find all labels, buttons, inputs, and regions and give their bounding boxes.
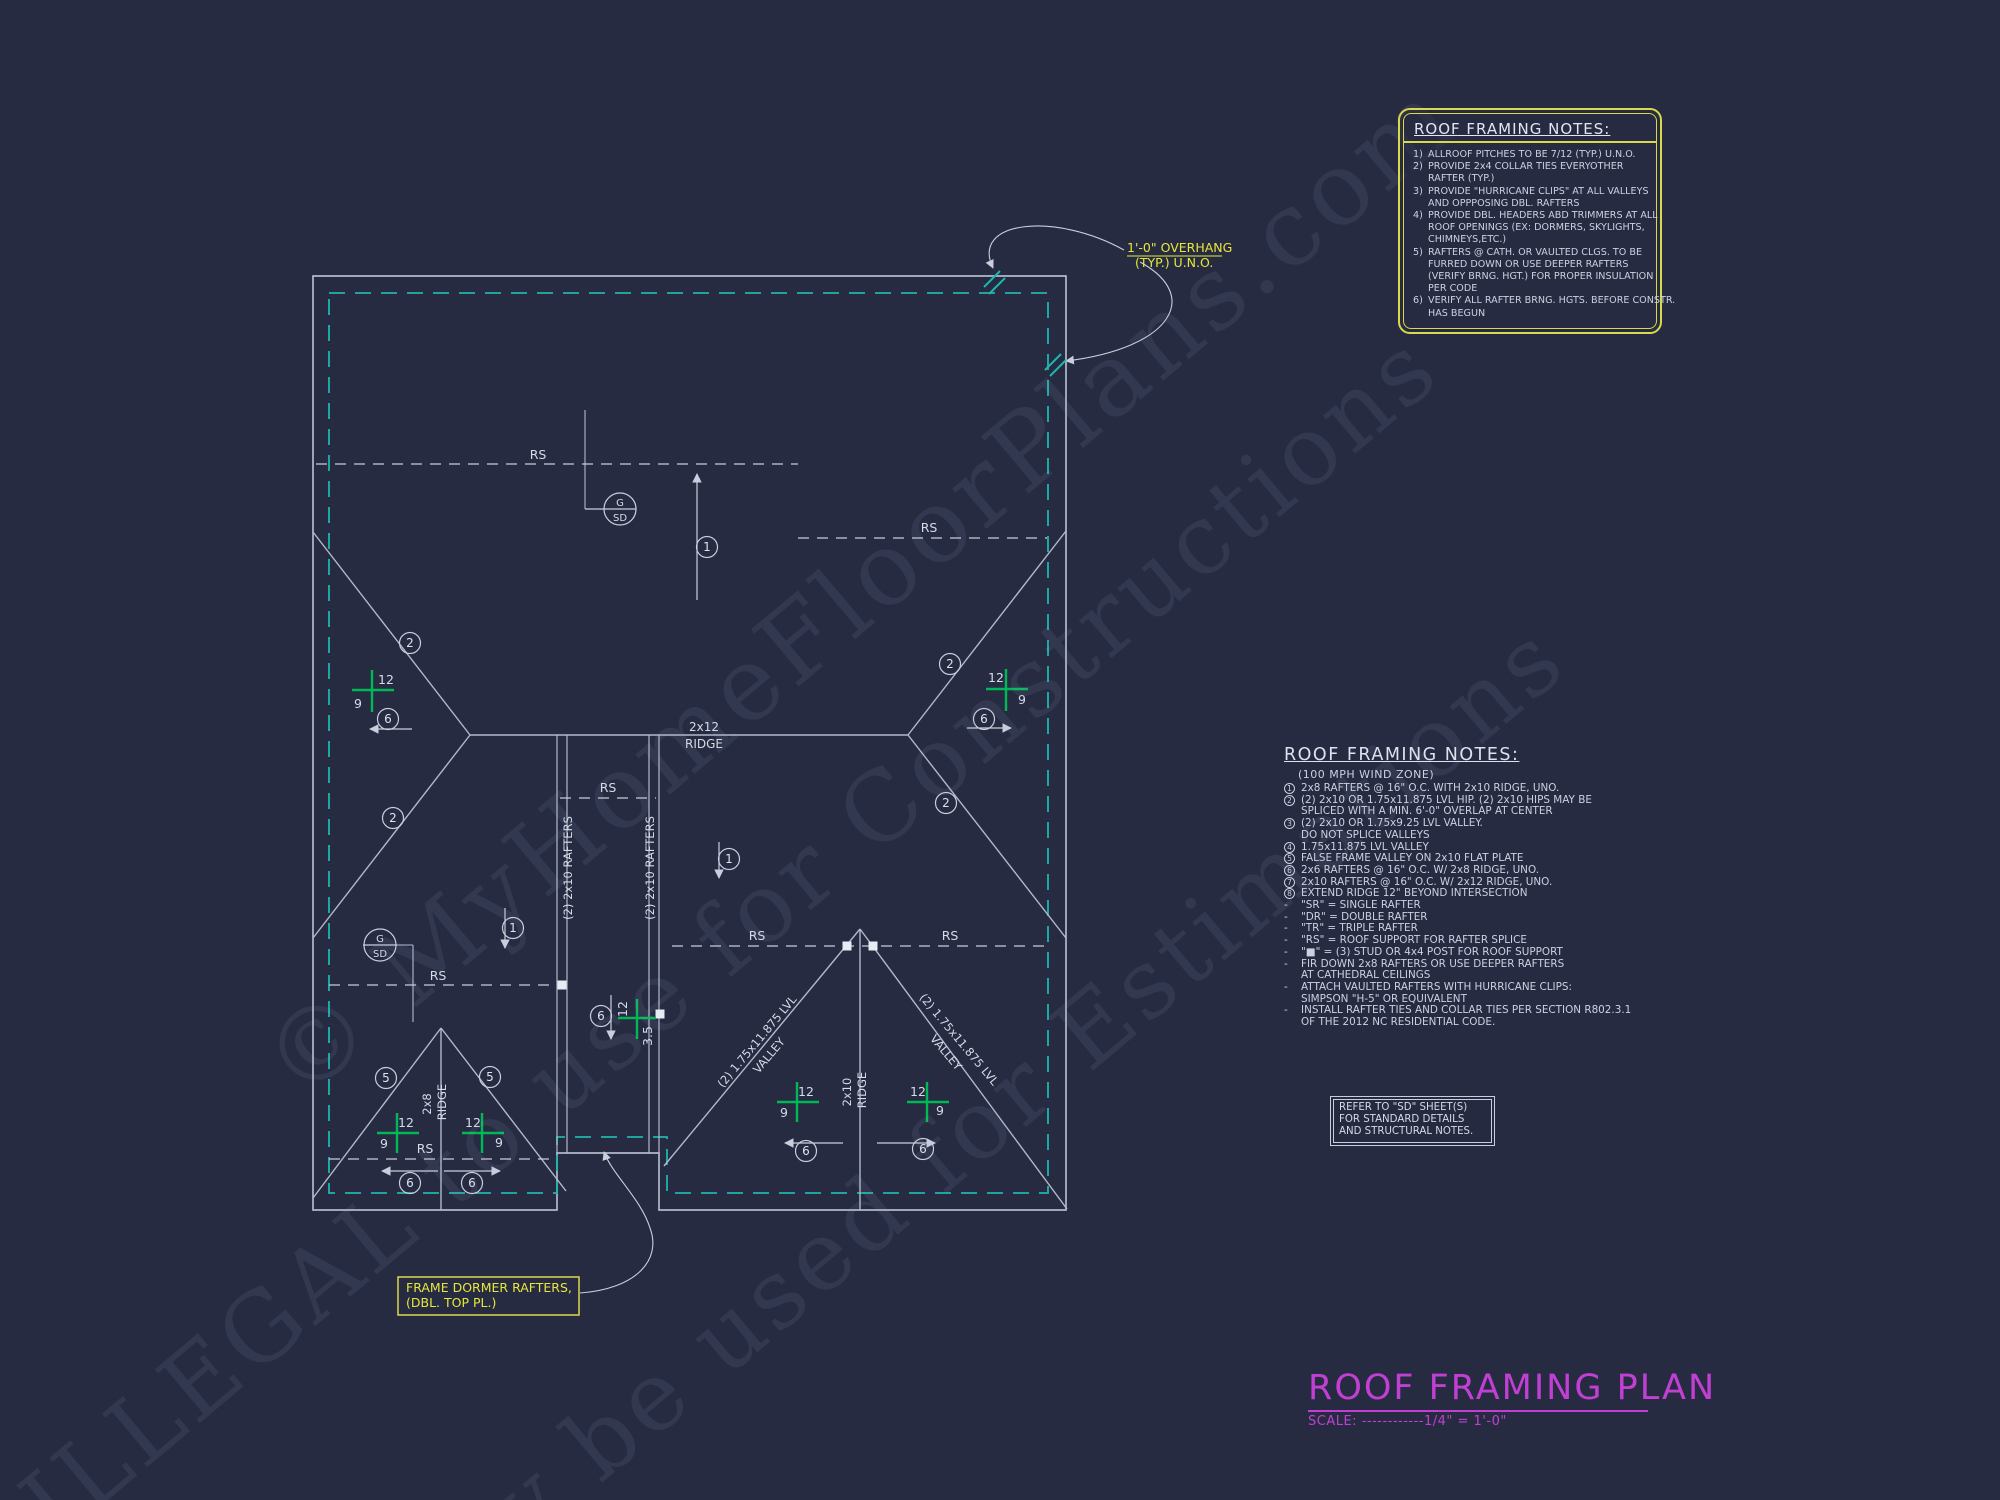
gable-right-slope: [441, 1028, 566, 1191]
svg-text:1: 1: [509, 921, 517, 935]
svg-text:2: 2: [942, 796, 950, 810]
rafters-label: (2) 2x10 RAFTERS: [643, 816, 657, 920]
keynote-line: - "SR" = SINGLE RAFTER: [1284, 900, 1644, 912]
svg-text:6: 6: [597, 1009, 605, 1023]
svg-text:9: 9: [936, 1103, 944, 1118]
svg-text:6: 6: [980, 712, 988, 726]
gsd-connector-bottom: [363, 945, 413, 1022]
svg-text:RS: RS: [749, 928, 766, 943]
rs-labels: RS RS RS RS RS RS RS: [417, 447, 959, 1156]
svg-text:6: 6: [802, 1144, 810, 1158]
svg-text:6: 6: [406, 1176, 414, 1190]
note-line: PER CODE: [1413, 283, 1648, 295]
svg-text:RS: RS: [530, 447, 547, 462]
keynotes-title: ROOF FRAMING NOTES:: [1284, 745, 1644, 765]
svg-text:5: 5: [486, 1070, 494, 1084]
svg-text:1: 1: [725, 852, 733, 866]
roof-framing-keynotes: ROOF FRAMING NOTES: (100 MPH WIND ZONE) …: [1284, 745, 1644, 1029]
tag-5: 5: [376, 1068, 397, 1089]
sd-reference-lines: REFER TO "SD" SHEET(S) FOR STANDARD DETA…: [1333, 1099, 1492, 1143]
note-line: 2) PROVIDE 2x4 COLLAR TIES EVERYOTHER: [1413, 161, 1648, 173]
svg-text:9: 9: [354, 696, 362, 711]
plan-canvas: G SD G SD 2 2 2 2 5 5 1 1: [0, 0, 2000, 1500]
svg-text:3.5: 3.5: [640, 1026, 655, 1046]
ridge-2x8-label: RIDGE: [435, 1084, 449, 1120]
svg-text:12: 12: [398, 1115, 414, 1130]
keynote-line: - ATTACH VAULTED RAFTERS WITH HURRICANE …: [1284, 982, 1644, 994]
overhang-ticks: [984, 271, 1066, 376]
svg-text:12: 12: [988, 670, 1004, 685]
tag-2: 2: [940, 654, 961, 675]
roof-framing-plan-sheet: G SD G SD 2 2 2 2 5 5 1 1: [0, 0, 2000, 1500]
svg-text:12: 12: [378, 672, 394, 687]
tag-6: 6: [591, 1006, 612, 1027]
keynotes-items: 1 2x8 RAFTERS @ 16" O.C. WITH 2x10 RIDGE…: [1284, 783, 1644, 1029]
svg-text:6: 6: [468, 1176, 476, 1190]
svg-text:FRAME DORMER RAFTERS,: FRAME DORMER RAFTERS,: [406, 1280, 572, 1295]
note-line: 5) RAFTERS @ CATH. OR VAULTED CLGS. TO B…: [1413, 247, 1648, 259]
valley-label: (2) 1.75x11.875 LVL: [714, 992, 799, 1090]
sd-reference-line: REFER TO "SD" SHEET(S): [1339, 1102, 1486, 1114]
gsd-top-sd: SD: [613, 513, 627, 524]
hip-bottom-right: [908, 735, 1066, 938]
note-line: CHIMNEYS,ETC.): [1413, 234, 1648, 246]
svg-text:2: 2: [406, 636, 414, 650]
dormer-leader: [580, 1152, 653, 1293]
note-line: (VERIFY BRNG. HGT.) FOR PROPER INSULATIO…: [1413, 271, 1648, 283]
ridge-2x10-label: 2x10: [840, 1078, 854, 1107]
valley-left: [313, 735, 470, 938]
svg-text:RS: RS: [430, 968, 447, 983]
note-line: FURRED DOWN OR USE DEEPER RAFTERS: [1413, 259, 1648, 271]
overhang-callout: 1'-0" OVERHANG (TYP.) U.N.O.: [1127, 240, 1232, 270]
svg-text:9: 9: [1018, 692, 1026, 707]
svg-text:6: 6: [919, 1142, 927, 1156]
keynote-line: - "■" = (3) STUD OR 4x4 POST FOR ROOF SU…: [1284, 947, 1644, 959]
note-line: AND OPPPOSING DBL. RAFTERS: [1413, 198, 1648, 210]
keynotes-subtitle: (100 MPH WIND ZONE): [1298, 768, 1644, 781]
svg-text:12: 12: [465, 1115, 481, 1130]
tag-6: 6: [378, 709, 399, 730]
svg-text:2: 2: [946, 657, 954, 671]
svg-text:1'-0" OVERHANG: 1'-0" OVERHANG: [1127, 240, 1232, 255]
svg-text:12: 12: [615, 1001, 630, 1017]
sheet-title: ROOF FRAMING PLAN: [1308, 1368, 1716, 1408]
notes-box-title: ROOF FRAMING NOTES:: [1414, 120, 1610, 138]
note-line: HAS BEGUN: [1413, 308, 1648, 320]
sheet-scale: SCALE: ------------1/4" = 1'-0": [1308, 1414, 1716, 1429]
ridge-2x8-label: 2x8: [420, 1093, 434, 1114]
svg-text:RS: RS: [417, 1141, 434, 1156]
hip-top-right: [908, 531, 1066, 735]
svg-text:RS: RS: [942, 928, 959, 943]
valley-lvl-left: [664, 929, 860, 1166]
note-line: 3) PROVIDE "HURRICANE CLIPS" AT ALL VALL…: [1413, 186, 1648, 198]
svg-text:5: 5: [382, 1071, 390, 1085]
note-line: ROOF OPENINGS (EX: DORMERS, SKYLIGHTS,: [1413, 222, 1648, 234]
keynote-tags: 2 2 2 2 5 5 1 1 1 6 6 6 6 6 6 6: [376, 537, 995, 1194]
svg-text:12: 12: [798, 1084, 814, 1099]
svg-text:RS: RS: [921, 520, 938, 535]
hip-top-left: [313, 532, 470, 735]
keynote-line: 1 2x8 RAFTERS @ 16" O.C. WITH 2x10 RIDGE…: [1284, 783, 1644, 795]
svg-text:6: 6: [384, 712, 392, 726]
ridge-2x12-label: RIDGE: [685, 737, 723, 751]
keynote-line: DO NOT SPLICE VALLEYS: [1284, 830, 1644, 842]
title-block: ROOF FRAMING PLAN SCALE: ------------1/4…: [1308, 1368, 1716, 1429]
tag-2: 2: [383, 808, 404, 829]
gsd-bottom-sd: SD: [373, 949, 387, 960]
svg-text:12: 12: [910, 1084, 926, 1099]
note-line: 4) PROVIDE DBL. HEADERS ABD TRIMMERS AT …: [1413, 210, 1648, 222]
tag-6: 6: [796, 1141, 817, 1162]
svg-text:9: 9: [380, 1136, 388, 1151]
tag-1: 1: [697, 537, 718, 558]
svg-text:9: 9: [495, 1135, 503, 1150]
valley-lvl-right: [860, 929, 1067, 1209]
tag-6: 6: [974, 709, 995, 730]
tag-5: 5: [480, 1067, 501, 1088]
tag-2: 2: [400, 633, 421, 654]
rafters-label: (2) 2x10 RAFTERS: [561, 816, 575, 920]
slope-arrows: [370, 474, 1011, 1171]
tag-6: 6: [400, 1173, 421, 1194]
svg-text:2: 2: [389, 811, 397, 825]
title-underline: [1308, 1410, 1648, 1412]
tag-6: 6: [913, 1139, 934, 1160]
ridge-2x10-label: RIDGE: [855, 1072, 869, 1108]
tag-2: 2: [936, 793, 957, 814]
svg-text:(DBL. TOP PL.): (DBL. TOP PL.): [406, 1295, 496, 1310]
svg-text:(TYP.) U.N.O.: (TYP.) U.N.O.: [1135, 255, 1213, 270]
notes-box-inner-border: ROOF FRAMING NOTES: 1) ALLROOF PITCHES T…: [1403, 113, 1657, 329]
svg-text:RS: RS: [600, 780, 617, 795]
keynote-line: 6 2x6 RAFTERS @ 16" O.C. W/ 2x8 RIDGE, U…: [1284, 865, 1644, 877]
sd-reference-line: AND STRUCTURAL NOTES.: [1339, 1126, 1486, 1138]
gsd-tag-top: [585, 493, 636, 525]
svg-text:9: 9: [780, 1105, 788, 1120]
ridge-2x12-label: 2x12: [689, 720, 719, 734]
roof-framing-notes-box: ROOF FRAMING NOTES: 1) ALLROOF PITCHES T…: [1398, 108, 1662, 334]
notes-box-items: 1) ALLROOF PITCHES TO BE 7/12 (TYP.) U.N…: [1404, 143, 1656, 320]
note-line: RAFTER (TYP.): [1413, 173, 1648, 185]
sd-reference-box: REFER TO "SD" SHEET(S) FOR STANDARD DETA…: [1330, 1096, 1495, 1146]
note-line: 1) ALLROOF PITCHES TO BE 7/12 (TYP.) U.N…: [1413, 149, 1648, 161]
tag-6: 6: [462, 1173, 483, 1194]
gsd-top-g: G: [616, 498, 624, 509]
gsd-bottom-g: G: [376, 934, 384, 945]
member-labels: 2x12 RIDGE (2) 2x10 RAFTERS (2) 2x10 RAF…: [420, 720, 1002, 1120]
tag-1: 1: [719, 849, 740, 870]
sd-reference-line: FOR STANDARD DETAILS: [1339, 1114, 1486, 1126]
rs-lines: [316, 464, 1047, 1159]
note-line: 6) VERIFY ALL RAFTER BRNG. HGTS. BEFORE …: [1413, 295, 1648, 307]
dormer-callout: FRAME DORMER RAFTERS, (DBL. TOP PL.): [398, 1277, 579, 1315]
keynote-line: OF THE 2012 NC RESIDENTIAL CODE.: [1284, 1017, 1644, 1029]
tag-1: 1: [503, 918, 524, 939]
svg-text:1: 1: [703, 540, 711, 554]
